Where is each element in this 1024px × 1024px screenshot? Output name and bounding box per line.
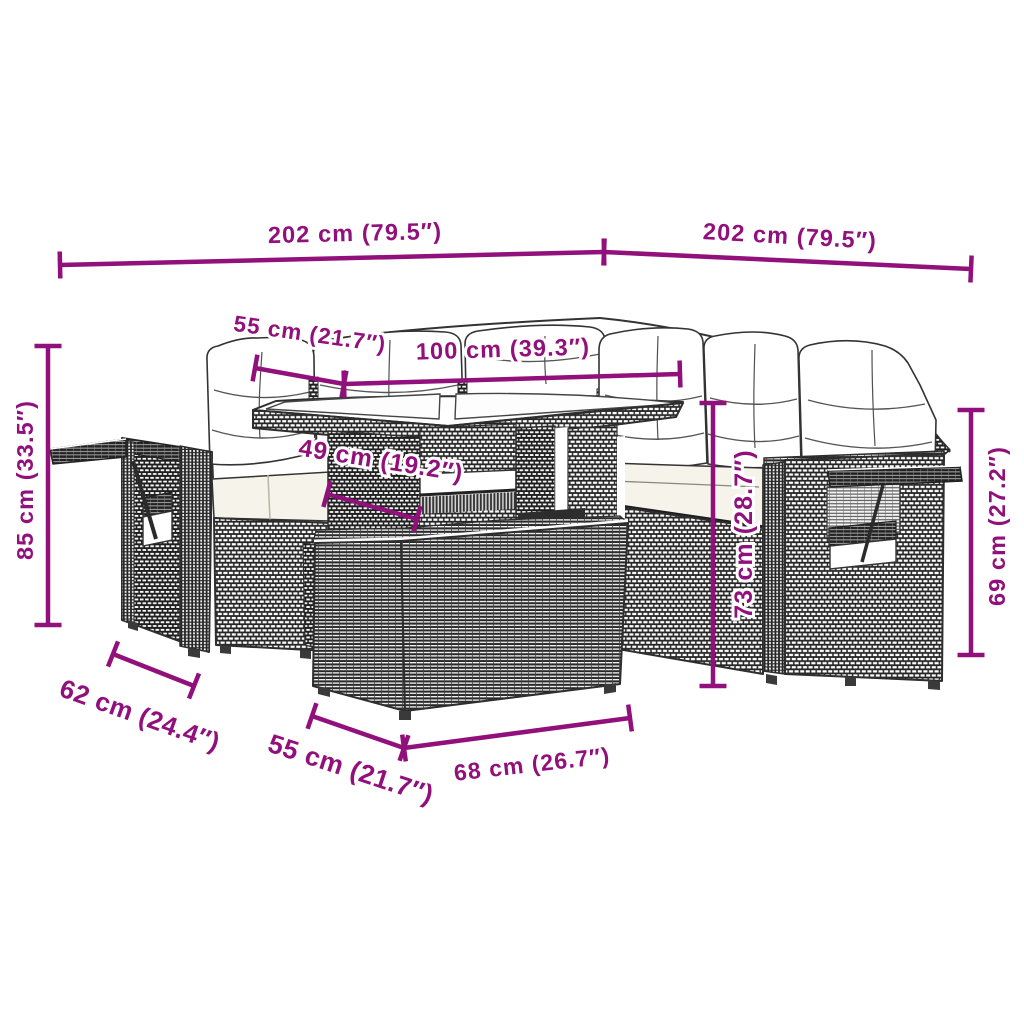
svg-text:69 cm (27.2″): 69 cm (27.2″): [984, 446, 1010, 606]
svg-text:85 cm (33.5″): 85 cm (33.5″): [12, 400, 38, 560]
svg-text:100 cm (39.3″): 100 cm (39.3″): [416, 333, 591, 364]
svg-text:73 cm (28.7″): 73 cm (28.7″): [730, 449, 758, 618]
svg-text:202 cm (79.5″): 202 cm (79.5″): [268, 218, 443, 248]
